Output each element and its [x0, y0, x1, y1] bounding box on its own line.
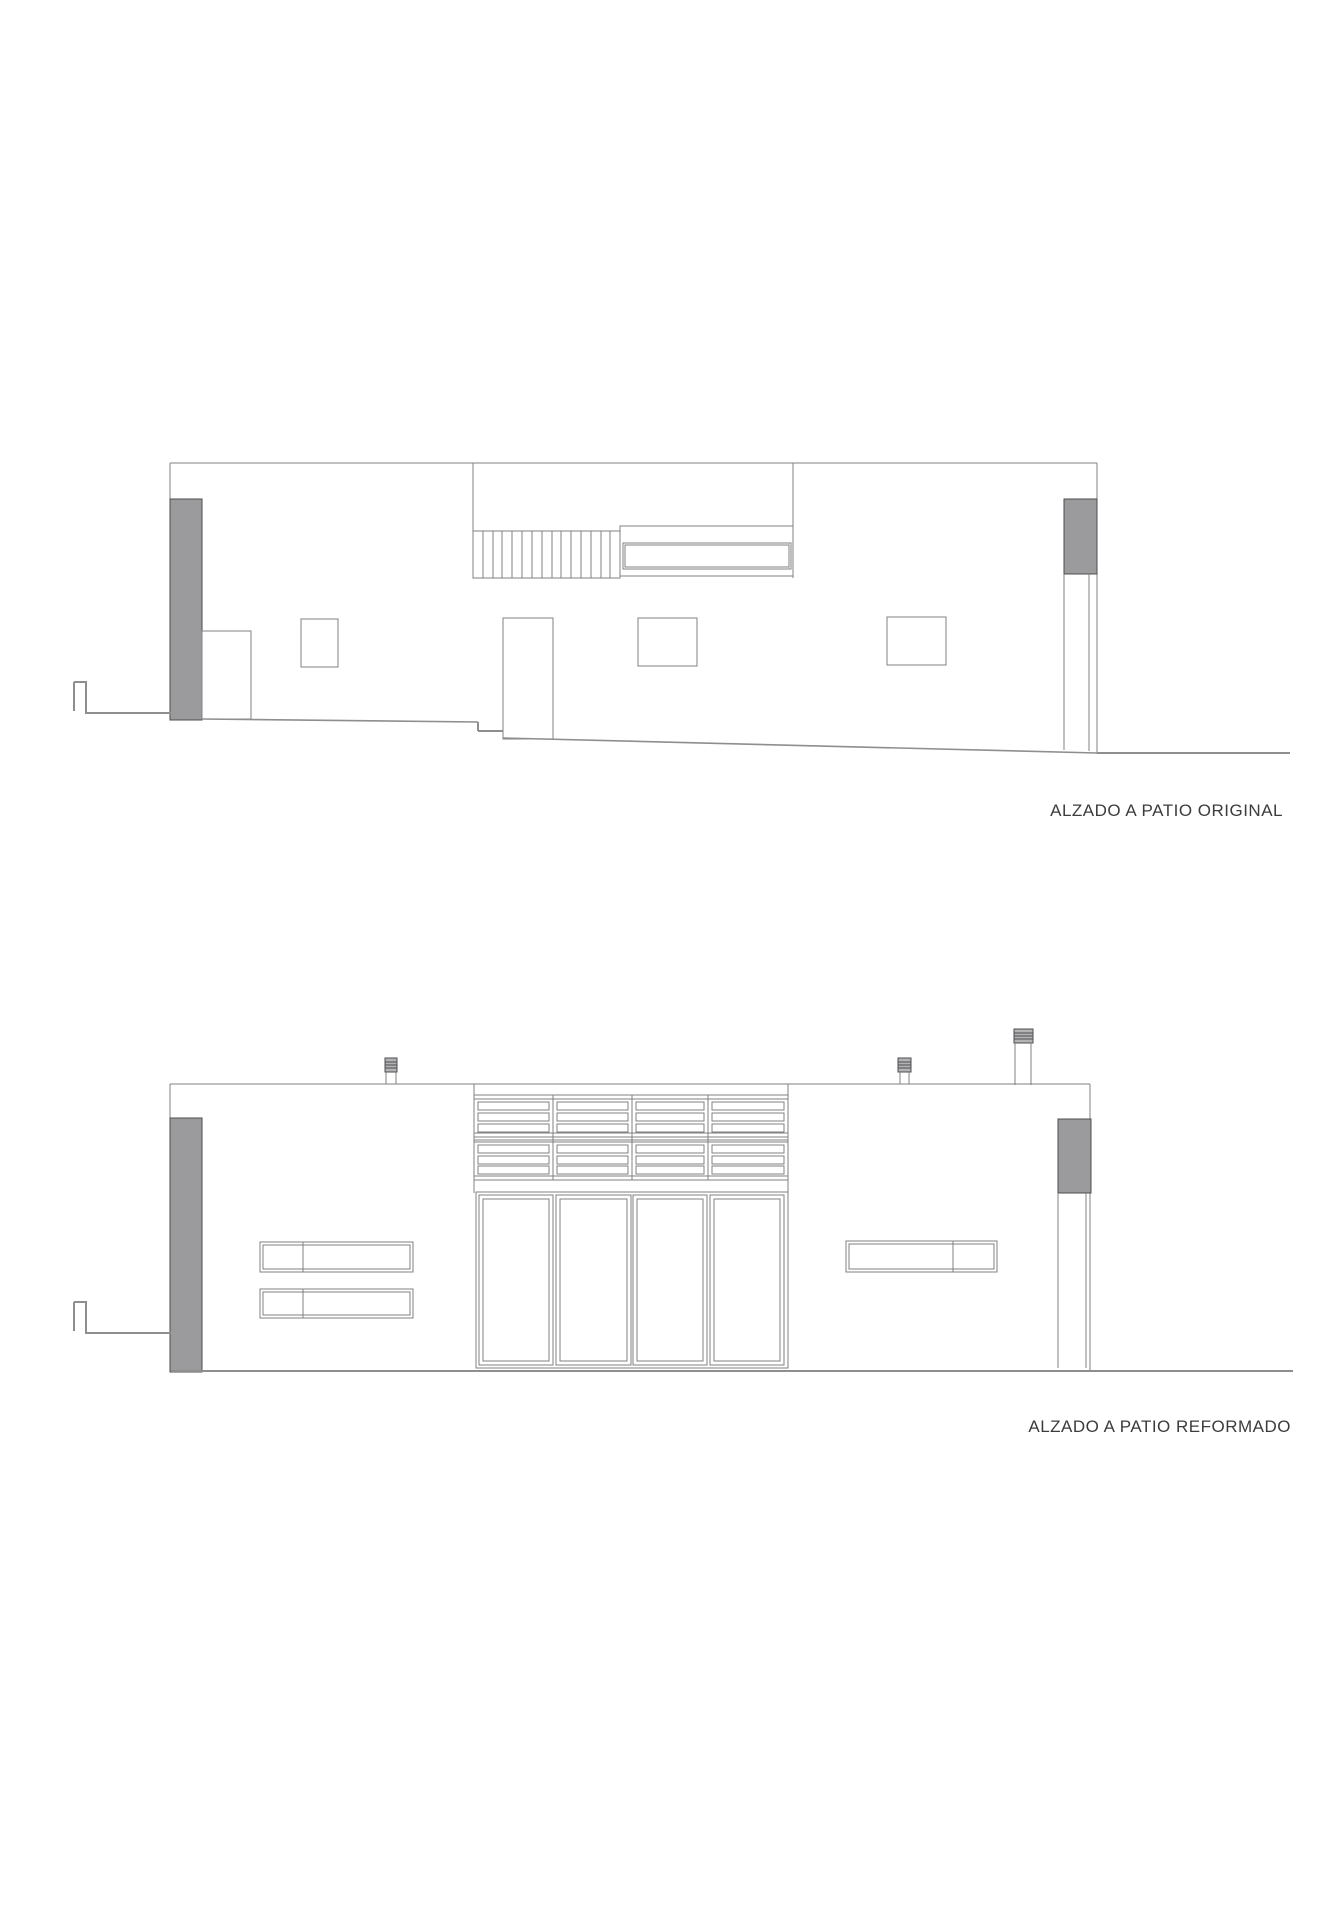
louver-group-lower — [474, 1142, 788, 1176]
louver-grid — [474, 1095, 788, 1180]
window-1 — [301, 619, 338, 667]
chimney — [1014, 1029, 1033, 1085]
left-pillar — [170, 1118, 202, 1372]
clerestory-window — [623, 543, 791, 569]
window-band-right — [846, 1241, 997, 1272]
left-step — [74, 682, 171, 713]
ground-line — [74, 682, 1290, 753]
caption-reformado: ALZADO A PATIO REFORMADO — [1028, 1417, 1291, 1437]
elevation-drawings-canvas — [0, 0, 1344, 1920]
right-pillar — [1064, 499, 1097, 574]
caption-original: ALZADO A PATIO ORIGINAL — [1050, 801, 1283, 821]
left-step — [74, 1302, 171, 1333]
window-2 — [638, 618, 697, 666]
building-outline — [170, 463, 1097, 753]
roof-vent-1 — [385, 1058, 397, 1084]
sloped-ground — [503, 738, 1097, 753]
central-section — [474, 1084, 788, 1193]
left-pillar — [170, 499, 202, 720]
reformado-elevation — [74, 1029, 1293, 1372]
window-band-left-lower — [260, 1289, 413, 1318]
original-elevation — [74, 463, 1290, 753]
right-column — [1058, 1193, 1086, 1368]
stair-hatch — [473, 531, 620, 578]
door-panel-1 — [479, 1195, 553, 1365]
window-band-left-upper — [260, 1242, 413, 1272]
roof-vent-2 — [898, 1058, 911, 1084]
right-column — [1064, 574, 1089, 751]
architectural-sheet: { "sheet": { "title_original": "ALZADO A… — [0, 0, 1344, 1920]
door-panel-2 — [556, 1195, 631, 1365]
door-panel-3 — [633, 1195, 707, 1365]
recessed-section — [473, 463, 793, 578]
niche — [202, 631, 251, 719]
window-3 — [887, 617, 946, 665]
door-panel-4 — [710, 1195, 784, 1365]
building-outline — [170, 1084, 1090, 1370]
clerestory-band — [620, 526, 793, 576]
right-pillar — [1058, 1119, 1091, 1193]
entry-door — [503, 618, 553, 739]
glass-doors — [476, 1192, 788, 1368]
louver-group-upper — [474, 1099, 788, 1133]
